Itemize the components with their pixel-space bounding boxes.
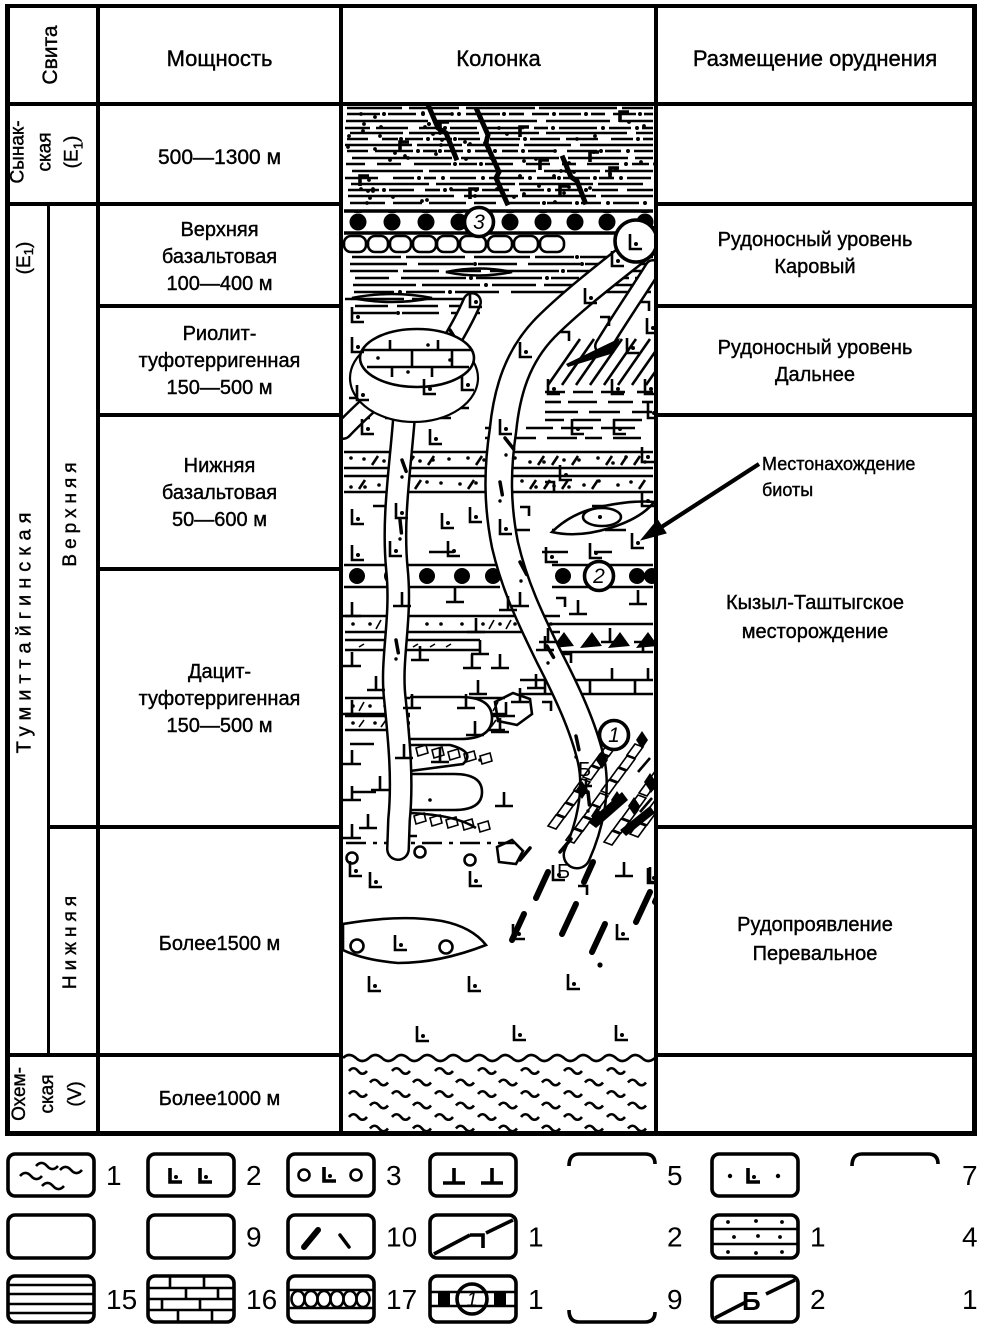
svg-text:Б: Б (742, 1286, 761, 1316)
svg-text:1: 1 (962, 1284, 978, 1315)
svg-text:9: 9 (667, 1284, 683, 1315)
svg-text:1: 1 (106, 1160, 122, 1191)
svg-text:2: 2 (246, 1160, 262, 1191)
svg-text:1: 1 (528, 1222, 544, 1253)
svg-text:Б: Б (557, 861, 570, 883)
svg-text:1: 1 (810, 1222, 826, 1253)
svg-text:2: 2 (810, 1284, 826, 1315)
svg-text:10: 10 (386, 1222, 417, 1253)
svg-text:9: 9 (246, 1222, 262, 1253)
svg-text:3: 3 (473, 211, 485, 234)
svg-text:17: 17 (386, 1284, 417, 1315)
svg-text:3: 3 (386, 1160, 402, 1191)
svg-text:5: 5 (667, 1160, 683, 1191)
svg-text:1: 1 (466, 1289, 477, 1311)
svg-text:1: 1 (608, 724, 620, 747)
svg-text:7: 7 (962, 1160, 978, 1191)
svg-text:Б: Б (578, 759, 591, 781)
svg-text:4: 4 (962, 1222, 978, 1253)
svg-text:15: 15 (106, 1284, 137, 1315)
svg-text:2: 2 (667, 1222, 683, 1253)
svg-text:16: 16 (246, 1284, 277, 1315)
svg-text:2: 2 (592, 565, 605, 588)
svg-text:1: 1 (528, 1284, 544, 1315)
